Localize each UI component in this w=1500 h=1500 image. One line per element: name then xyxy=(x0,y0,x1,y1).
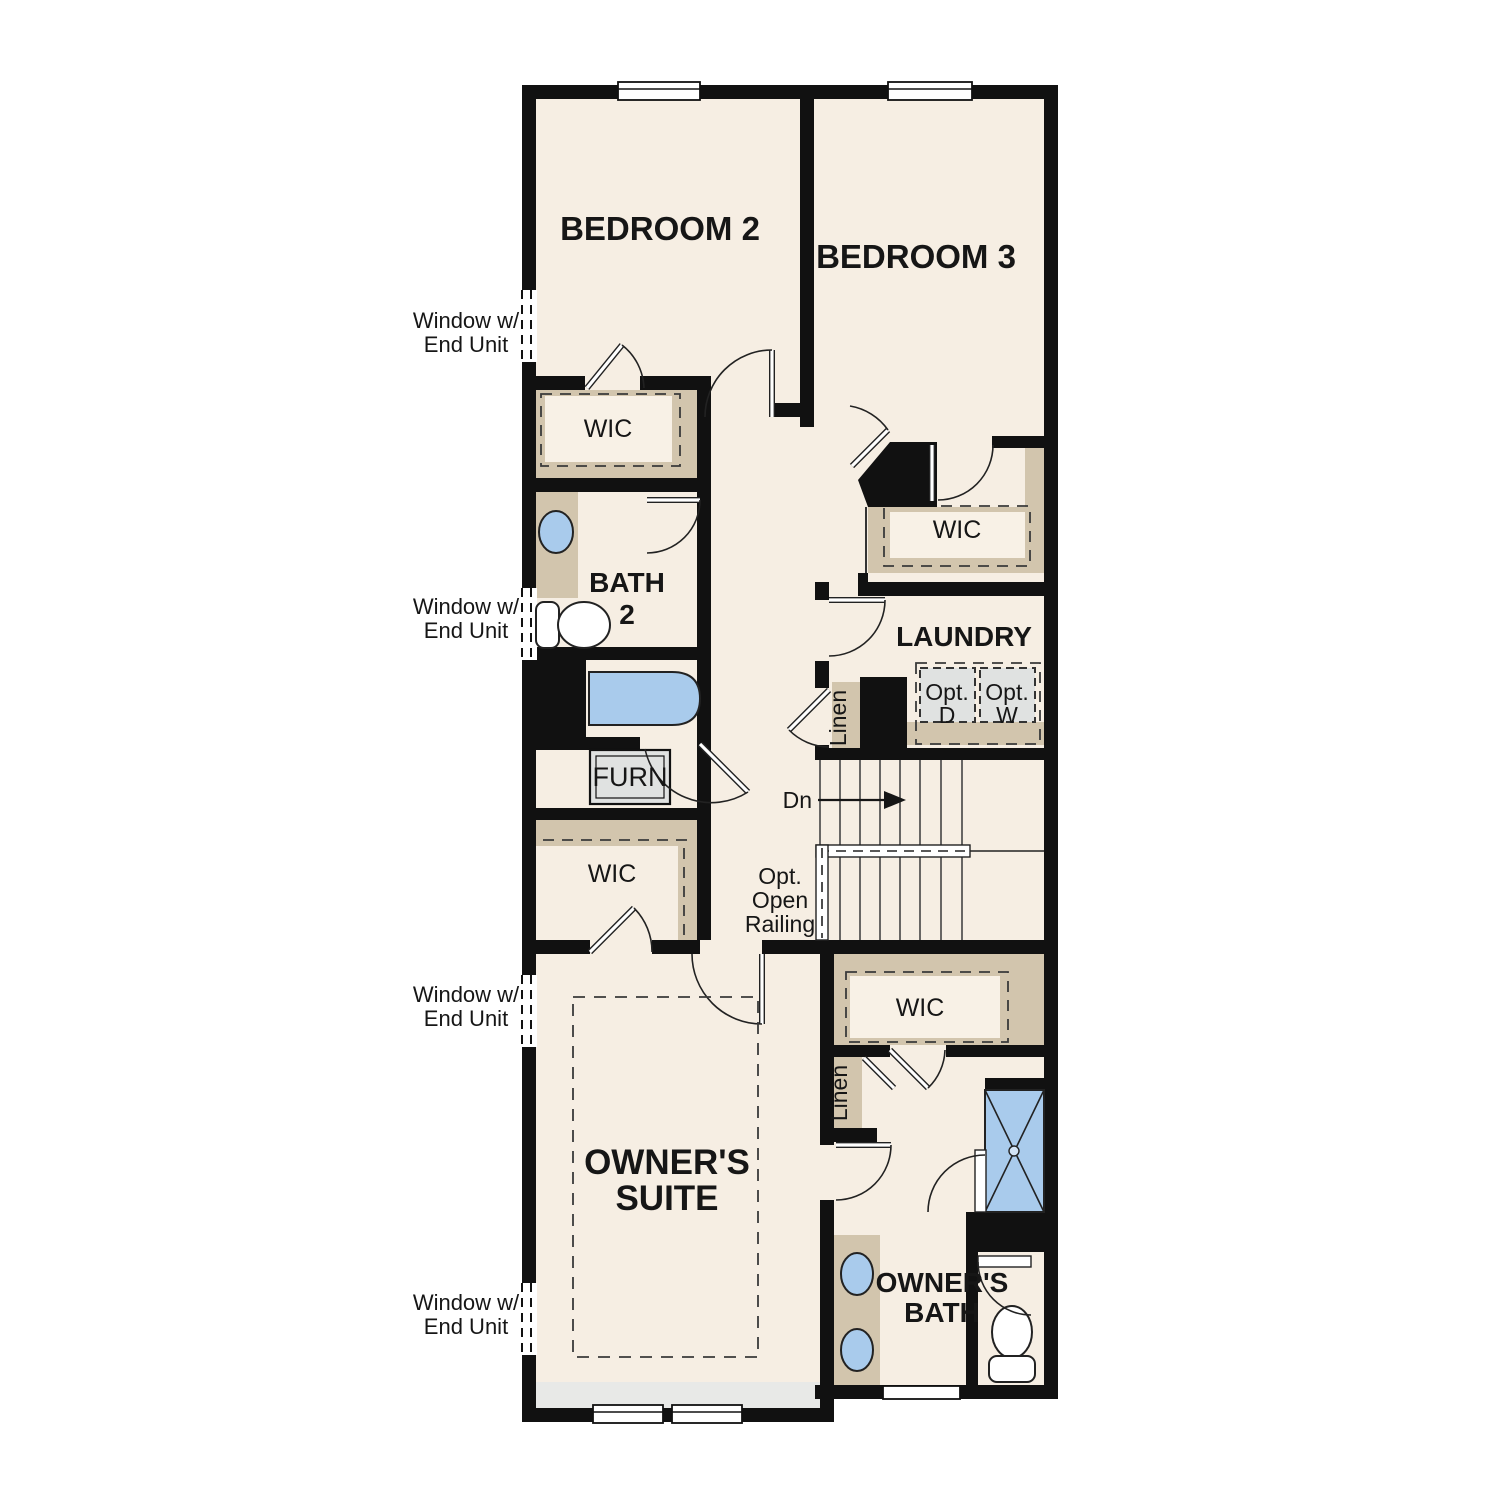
window-note-2: Window w/ End Unit xyxy=(413,594,520,643)
window-note-1: Window w/ End Unit xyxy=(413,308,520,357)
room-label-owners-bath-line2: BATH xyxy=(904,1297,980,1328)
svg-text:End Unit: End Unit xyxy=(424,332,508,357)
svg-text:End Unit: End Unit xyxy=(424,1006,508,1031)
railing-label-line3: Railing xyxy=(745,911,815,937)
svg-text:End Unit: End Unit xyxy=(424,1314,508,1339)
wic-label-owners-right: WIC xyxy=(896,994,945,1022)
window-note-3: Window w/ End Unit xyxy=(413,982,520,1031)
bath2-tub xyxy=(589,672,700,725)
wic-label-owners-left: WIC xyxy=(588,860,637,888)
svg-text:End Unit: End Unit xyxy=(424,618,508,643)
wic-label-bedroom2: WIC xyxy=(584,415,633,443)
room-label-bath2-line2: 2 xyxy=(619,599,635,630)
room-label-bedroom-3: BEDROOM 3 xyxy=(816,238,1016,275)
window-bedroom3 xyxy=(888,82,972,100)
furnace-label: FURN xyxy=(593,762,668,792)
opt-dryer-line2: D xyxy=(939,702,956,728)
window-bedroom2 xyxy=(618,82,700,100)
window-owners-bath xyxy=(883,1386,960,1399)
linen-label-bottom: Linen xyxy=(826,1065,852,1121)
opt-washer-line2: W xyxy=(996,702,1018,728)
window-note-4: Window w/ End Unit xyxy=(413,1290,520,1339)
linen-label-top: Linen xyxy=(825,690,851,746)
bath2-toilet xyxy=(536,602,610,648)
room-label-laundry: LAUNDRY xyxy=(896,621,1032,652)
stairs-down-label: Dn xyxy=(783,787,812,813)
floor-plan: BEDROOM 2 BEDROOM 3 WIC BATH 2 WIC LAUND… xyxy=(0,0,1500,1500)
bath2-sink xyxy=(539,511,573,553)
railing-label-line1: Opt. xyxy=(758,863,801,889)
room-label-bath2-line1: BATH xyxy=(589,567,665,598)
svg-text:Window w/: Window w/ xyxy=(413,982,520,1007)
wic-label-bedroom3: WIC xyxy=(933,516,982,544)
room-label-bedroom-2: BEDROOM 2 xyxy=(560,210,760,247)
railing-label-line2: Open xyxy=(752,887,808,913)
room-label-owners-bath-line1: OWNER'S xyxy=(876,1267,1009,1298)
window-seat-strip xyxy=(536,1382,820,1408)
owners-sink-1 xyxy=(841,1253,873,1295)
svg-text:Window w/: Window w/ xyxy=(413,594,520,619)
room-label-owners-suite-line2: SUITE xyxy=(615,1179,718,1218)
window-suite-2 xyxy=(672,1405,742,1423)
window-suite-1 xyxy=(593,1405,663,1423)
room-label-owners-suite-line1: OWNER'S xyxy=(584,1143,750,1182)
owners-shower xyxy=(985,1090,1044,1212)
svg-text:Window w/: Window w/ xyxy=(413,1290,520,1315)
floor-plan-page: BEDROOM 2 BEDROOM 3 WIC BATH 2 WIC LAUND… xyxy=(0,0,1500,1500)
owners-toilet xyxy=(989,1306,1035,1382)
owners-sink-2 xyxy=(841,1329,873,1371)
svg-text:Window w/: Window w/ xyxy=(413,308,520,333)
